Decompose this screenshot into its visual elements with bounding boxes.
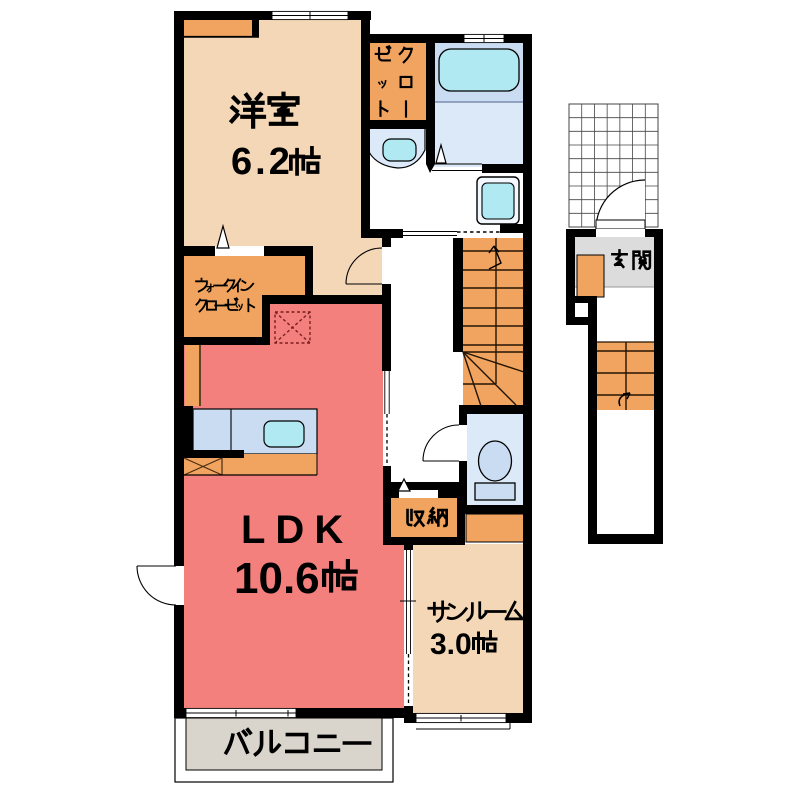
svg-text:LDK: LDK	[241, 508, 353, 552]
svg-text:3.0: 3.0	[430, 628, 472, 661]
svg-text:6.2: 6.2	[231, 141, 293, 183]
svg-text:10.6: 10.6	[234, 554, 320, 603]
